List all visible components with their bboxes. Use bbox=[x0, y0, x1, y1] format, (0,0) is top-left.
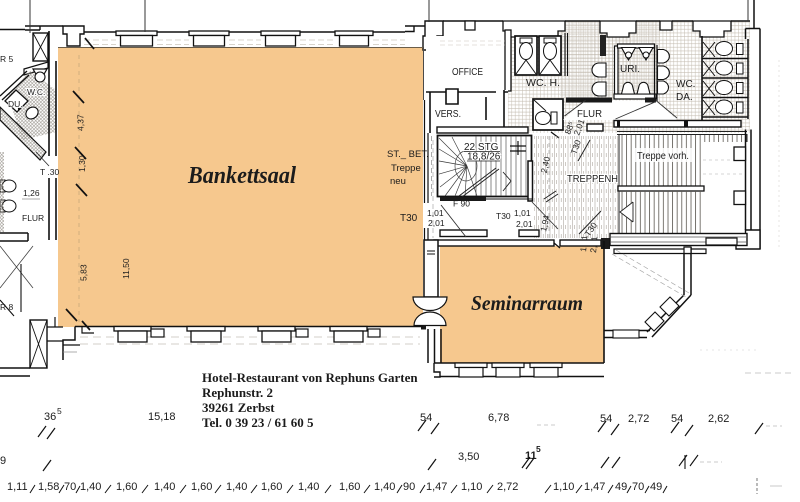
svg-text:90: 90 bbox=[403, 481, 415, 493]
svg-text:39261 Zerbst: 39261 Zerbst bbox=[202, 400, 275, 415]
svg-text:1,10: 1,10 bbox=[461, 481, 482, 493]
svg-text:1,01: 1,01 bbox=[427, 208, 444, 218]
svg-text:5: 5 bbox=[536, 444, 541, 454]
svg-text:1,01: 1,01 bbox=[514, 208, 531, 218]
svg-text:2,01: 2,01 bbox=[516, 219, 533, 229]
svg-text:F 90: F 90 bbox=[453, 199, 470, 209]
svg-text:1,40: 1,40 bbox=[374, 481, 395, 493]
svg-text:6,78: 6,78 bbox=[488, 412, 509, 424]
svg-text:T .30: T .30 bbox=[40, 167, 59, 177]
svg-text:Seminarraum: Seminarraum bbox=[471, 291, 583, 315]
svg-text:URI.: URI. bbox=[620, 64, 640, 75]
svg-text:36: 36 bbox=[44, 411, 56, 423]
svg-text:DU.: DU. bbox=[8, 99, 23, 109]
svg-text:1,40: 1,40 bbox=[80, 481, 101, 493]
svg-text:OFFICE: OFFICE bbox=[452, 67, 483, 78]
svg-text:TREPPENH: TREPPENH bbox=[567, 174, 618, 185]
svg-text:1,60: 1,60 bbox=[339, 481, 360, 493]
svg-text:R 5: R 5 bbox=[0, 54, 14, 64]
svg-text:11,50: 11,50 bbox=[121, 258, 131, 279]
svg-text:T30: T30 bbox=[496, 211, 511, 221]
svg-text:1,60: 1,60 bbox=[191, 481, 212, 493]
svg-text:T30: T30 bbox=[400, 213, 418, 224]
svg-text:4,37: 4,37 bbox=[76, 114, 86, 131]
svg-text:WC.: WC. bbox=[676, 79, 695, 90]
svg-text:2,01: 2,01 bbox=[428, 218, 445, 228]
svg-text:neu: neu bbox=[390, 176, 406, 187]
svg-text:70: 70 bbox=[64, 481, 76, 493]
svg-text:Treppe vorh.: Treppe vorh. bbox=[637, 151, 689, 162]
svg-text:70: 70 bbox=[632, 481, 644, 493]
svg-text:W.C.: W.C. bbox=[27, 87, 45, 97]
svg-text:1,60: 1,60 bbox=[116, 481, 137, 493]
svg-text:54: 54 bbox=[600, 413, 612, 425]
svg-text:3,50: 3,50 bbox=[458, 451, 479, 463]
svg-text:5,83: 5,83 bbox=[79, 264, 89, 281]
svg-text:VERS.: VERS. bbox=[435, 109, 461, 120]
svg-text:Hotel-Restaurant von Rephuns G: Hotel-Restaurant von Rephuns Garten bbox=[202, 370, 418, 385]
svg-text:9: 9 bbox=[0, 455, 6, 467]
svg-text:1,47: 1,47 bbox=[426, 481, 447, 493]
svg-text:5: 5 bbox=[57, 406, 62, 416]
svg-text:WC. H.: WC. H. bbox=[526, 78, 560, 89]
svg-text:1,58: 1,58 bbox=[38, 481, 59, 493]
svg-text:1,40: 1,40 bbox=[298, 481, 319, 493]
svg-text:11: 11 bbox=[525, 450, 537, 462]
svg-text:54: 54 bbox=[420, 412, 432, 424]
svg-text:1,11: 1,11 bbox=[7, 481, 28, 493]
svg-text:Tel. 0 39 23 / 61 60 5: Tel. 0 39 23 / 61 60 5 bbox=[202, 415, 314, 430]
svg-text:2,62: 2,62 bbox=[708, 413, 729, 425]
svg-text:Treppe: Treppe bbox=[391, 163, 421, 174]
svg-text:Bankettsaal: Bankettsaal bbox=[187, 163, 296, 189]
svg-text:FLUR: FLUR bbox=[577, 109, 602, 120]
svg-text:1,40: 1,40 bbox=[154, 481, 175, 493]
svg-text:FLUR: FLUR bbox=[22, 213, 44, 223]
svg-text:Rephunstr. 2: Rephunstr. 2 bbox=[202, 385, 273, 400]
svg-text:ST._ BET.: ST._ BET. bbox=[387, 149, 429, 160]
svg-text:15,18: 15,18 bbox=[148, 411, 176, 423]
svg-text:2,72: 2,72 bbox=[497, 481, 518, 493]
svg-text:49: 49 bbox=[650, 481, 662, 493]
svg-text:2,72: 2,72 bbox=[628, 413, 649, 425]
svg-text:1,60: 1,60 bbox=[261, 481, 282, 493]
svg-text:54: 54 bbox=[671, 413, 683, 425]
svg-text:1,10: 1,10 bbox=[553, 481, 574, 493]
svg-text:1,40: 1,40 bbox=[226, 481, 247, 493]
svg-text:1,26: 1,26 bbox=[23, 188, 40, 198]
svg-text:1,47: 1,47 bbox=[584, 481, 605, 493]
svg-text:49: 49 bbox=[615, 481, 627, 493]
svg-text:DA.: DA. bbox=[676, 92, 693, 103]
